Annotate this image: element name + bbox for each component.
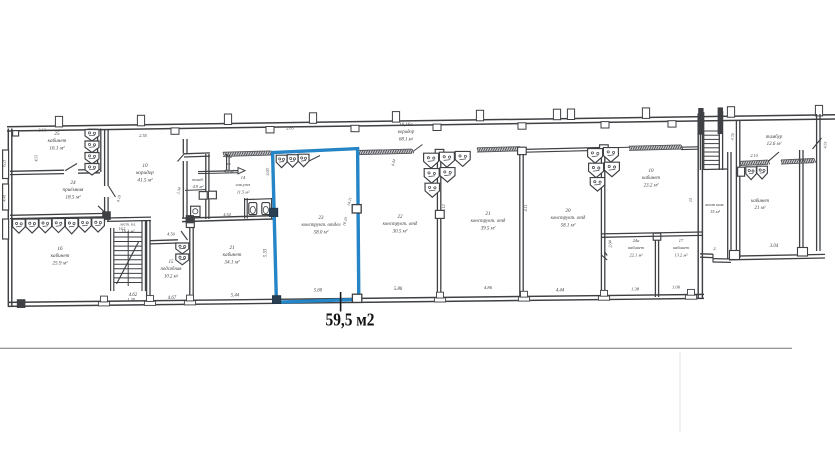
- svg-text:6.21: 6.21: [2, 159, 7, 166]
- svg-text:5.44: 5.44: [231, 293, 240, 298]
- svg-text:конструкт. отд: конструкт. отд: [551, 216, 586, 221]
- svg-text:3.03: 3.03: [265, 168, 270, 175]
- svg-text:4.9 м²: 4.9 м²: [193, 184, 204, 189]
- svg-text:10: 10: [649, 169, 655, 174]
- svg-text:10.2 м²: 10.2 м²: [164, 273, 179, 279]
- svg-text:тамб.: тамб.: [192, 177, 204, 182]
- svg-text:21: 21: [486, 212, 491, 217]
- svg-text:5.60: 5.60: [314, 288, 323, 293]
- svg-text:11.5 м²: 11.5 м²: [237, 189, 250, 194]
- svg-text:16.1 м²: 16.1 м²: [49, 145, 65, 151]
- svg-text:15 м²: 15 м²: [710, 209, 721, 214]
- svg-text:30.5 м²: 30.5 м²: [393, 228, 408, 234]
- svg-text:кл.: кл.: [227, 161, 232, 166]
- svg-text:4.12: 4.12: [441, 204, 446, 211]
- svg-text:4.67: 4.67: [168, 296, 177, 301]
- svg-text:4.51: 4.51: [822, 141, 828, 148]
- svg-text:коридор: коридор: [398, 130, 415, 135]
- svg-text:58.0 м²: 58.0 м²: [314, 229, 329, 235]
- svg-text:1.06: 1.06: [672, 284, 681, 289]
- svg-text:4.41: 4.41: [2, 194, 7, 201]
- svg-text:24: 24: [70, 179, 76, 186]
- svg-text:22: 22: [398, 215, 404, 220]
- svg-text:4.54: 4.54: [223, 212, 230, 217]
- svg-text:59,5 м2: 59,5 м2: [326, 310, 375, 330]
- svg-text:41.5 м²: 41.5 м²: [137, 176, 153, 183]
- svg-text:вент кам.: вент кам.: [705, 202, 724, 207]
- svg-text:39.5 м²: 39.5 м²: [481, 225, 496, 231]
- svg-text:кабинет: кабинет: [48, 137, 67, 144]
- svg-text:4.51: 4.51: [33, 155, 38, 162]
- svg-text:4.9 м²: 4.9 м²: [224, 168, 235, 173]
- svg-text:13.2 м²: 13.2 м²: [675, 252, 689, 257]
- svg-text:21 м²: 21 м²: [755, 205, 766, 211]
- svg-text:кабинет: кабинет: [673, 245, 689, 250]
- svg-text:1.38: 1.38: [631, 287, 640, 292]
- svg-text:2.13: 2.13: [38, 128, 46, 133]
- svg-text:2.10: 2.10: [750, 153, 758, 158]
- svg-text:2.: 2.: [713, 246, 716, 251]
- svg-text:лест. пл.: лест. пл.: [119, 221, 137, 226]
- svg-text:кабинет: кабинет: [628, 245, 644, 250]
- svg-text:4.50: 4.50: [167, 232, 175, 237]
- svg-text:кабинет: кабинет: [751, 199, 769, 204]
- svg-text:5.33: 5.33: [263, 248, 268, 257]
- svg-text:подсобная: подсобная: [161, 267, 183, 272]
- svg-text:25: 25: [54, 131, 60, 137]
- svg-text:конструкт. отд: конструкт. отд: [383, 222, 418, 227]
- svg-text:2.55: 2.55: [139, 133, 147, 138]
- svg-text:58.1 м²: 58.1 м²: [561, 222, 576, 228]
- svg-text:конструкт. отд: конструкт. отд: [471, 219, 506, 224]
- svg-text:тамбур: тамбур: [766, 135, 783, 140]
- svg-text:20: 20: [566, 209, 572, 214]
- svg-text:21: 21: [229, 245, 235, 251]
- svg-text:68.1 м²: 68.1 м²: [399, 136, 414, 142]
- svg-text:5.86: 5.86: [394, 287, 403, 292]
- svg-text:кабинет: кабинет: [642, 176, 660, 181]
- svg-text:15: 15: [169, 260, 174, 265]
- svg-text:4.86: 4.86: [484, 285, 493, 290]
- svg-text:16,16а: 16,16а: [399, 123, 413, 128]
- svg-text:16.2: 16.2: [119, 227, 126, 231]
- svg-text:25.9 м²: 25.9 м²: [52, 260, 68, 266]
- svg-text:сан.узел: сан.узел: [236, 182, 251, 187]
- svg-text:34.1 м²: 34.1 м²: [224, 258, 240, 265]
- svg-text:2.04: 2.04: [607, 240, 612, 247]
- svg-text:10: 10: [142, 163, 148, 169]
- svg-text:16: 16: [57, 246, 63, 252]
- svg-text:18.5 м²: 18.5 м²: [65, 194, 81, 200]
- svg-text:12.6 м²: 12.6 м²: [767, 141, 782, 147]
- svg-text:кабинет: кабинет: [51, 252, 70, 259]
- svg-text:2.85: 2.85: [286, 125, 293, 130]
- svg-text:15: 15: [688, 198, 693, 202]
- svg-text:22.1 м²: 22.1 м²: [630, 252, 644, 257]
- svg-text:24а: 24а: [633, 238, 640, 243]
- svg-text:3.04: 3.04: [770, 244, 779, 249]
- svg-text:кабинет: кабинет: [223, 251, 242, 258]
- svg-text:4.44: 4.44: [556, 289, 565, 294]
- svg-text:23.2 м²: 23.2 м²: [644, 182, 659, 188]
- svg-text:23: 23: [319, 216, 325, 221]
- svg-text:4.11: 4.11: [523, 204, 528, 211]
- svg-text:приёмная: приёмная: [63, 187, 85, 193]
- svg-text:коридор: коридор: [136, 169, 154, 176]
- svg-text:1.39: 1.39: [127, 297, 135, 302]
- svg-text:24а: 24а: [226, 154, 232, 159]
- svg-text:конструкт. отдел: конструкт. отдел: [301, 223, 340, 228]
